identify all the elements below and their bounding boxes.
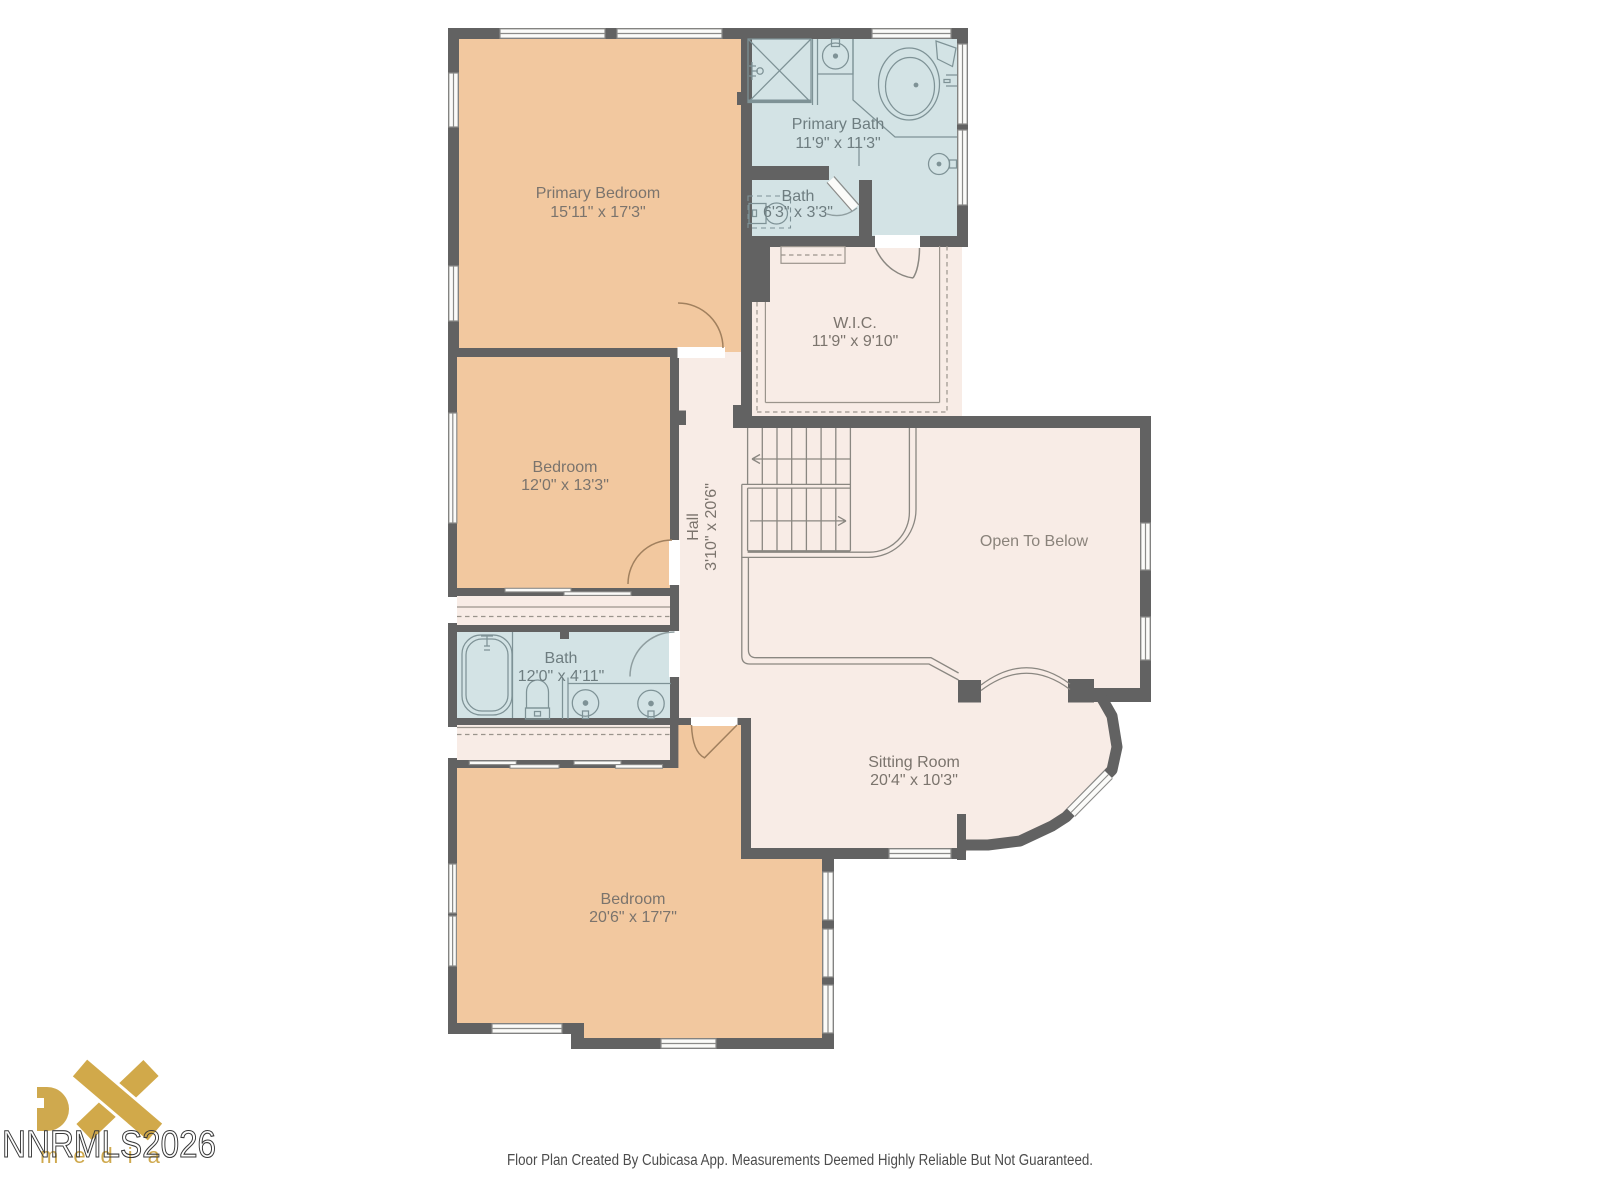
svg-text:Bedroom: Bedroom [533,459,598,476]
svg-text:20'4" x 10'3": 20'4" x 10'3" [870,772,958,789]
svg-text:W.I.C.: W.I.C. [833,315,877,332]
svg-text:6'3" x 3'3": 6'3" x 3'3" [763,204,833,221]
svg-text:Bedroom: Bedroom [601,891,666,908]
svg-text:15'11" x 17'3": 15'11" x 17'3" [550,204,645,221]
svg-text:11'9" x 11'3": 11'9" x 11'3" [795,135,880,152]
svg-text:NNRMLS2026: NNRMLS2026 [2,1124,216,1166]
svg-text:Sitting Room: Sitting Room [868,754,960,771]
svg-text:Floor Plan Created By Cubicasa: Floor Plan Created By Cubicasa App. Meas… [507,1152,1093,1169]
svg-text:Primary Bath: Primary Bath [792,116,884,133]
svg-text:12'0" x 4'11": 12'0" x 4'11" [518,668,605,685]
svg-text:Bath: Bath [545,650,578,667]
svg-text:12'0" x 13'3": 12'0" x 13'3" [521,477,609,494]
svg-text:Primary Bedroom: Primary Bedroom [536,185,660,202]
svg-text:Hall: Hall [685,513,702,541]
svg-text:3'10" x 20'6": 3'10" x 20'6" [703,483,720,571]
svg-text:Bath: Bath [782,188,815,205]
svg-text:20'6" x 17'7": 20'6" x 17'7" [589,909,677,926]
svg-text:11'9" x 9'10": 11'9" x 9'10" [812,333,899,350]
svg-text:Open To Below: Open To Below [980,533,1089,550]
